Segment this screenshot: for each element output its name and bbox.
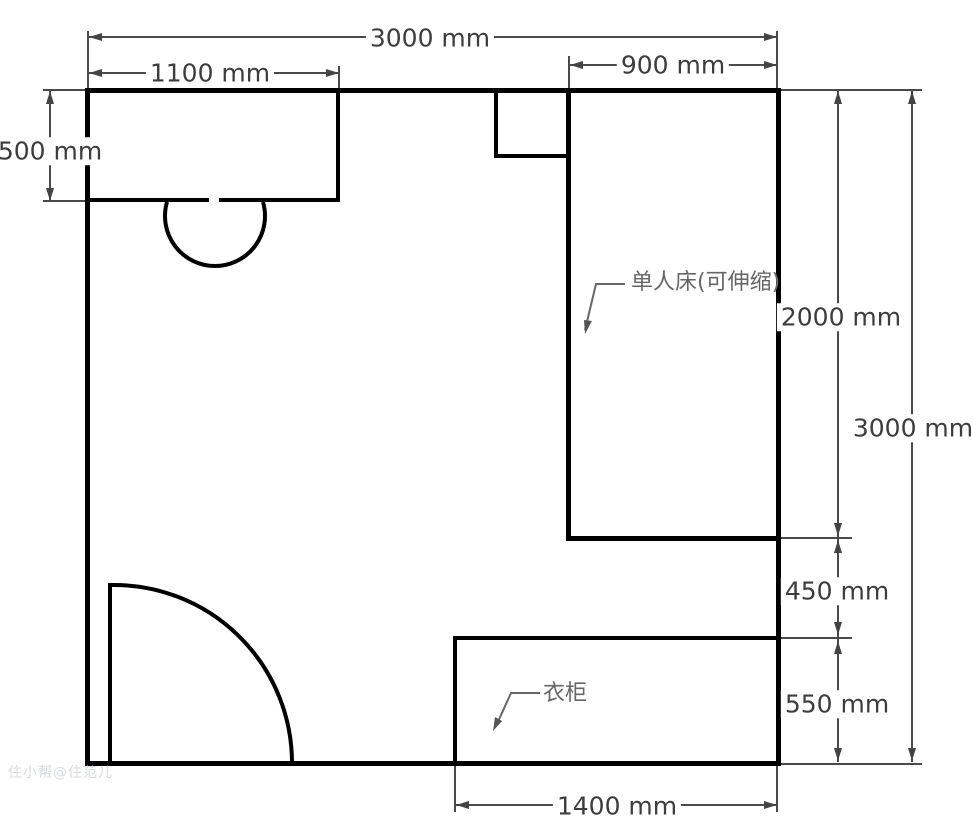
bed-label: 单人床(可伸缩) xyxy=(631,271,780,295)
watermark: 住小帮@住范儿 xyxy=(8,762,113,782)
dim-label-wardrobe-depth: 550 mm xyxy=(781,690,893,718)
dim-label-room-depth-right: 3000 mm xyxy=(849,414,973,442)
dim-label-wardrobe-width-bottom: 1400 mm xyxy=(553,792,681,820)
dim-label-bed-length: 2000 mm xyxy=(777,303,905,331)
dim-label-room-width-top: 3000 mm xyxy=(366,24,494,52)
wardrobe-label: 衣柜 xyxy=(543,682,587,706)
door-swing-arc xyxy=(112,585,292,763)
chair-semicircle xyxy=(165,202,265,266)
wardrobe-label-leader xyxy=(496,693,540,726)
floor-plan-canvas: 3000 mm 1100 mm 900 mm 500 mm 2000 mm 30… xyxy=(0,0,973,826)
dim-label-desk-width: 1100 mm xyxy=(146,59,274,87)
bed-label-leader-arrowhead xyxy=(584,320,592,334)
dim-label-bed-to-wardrobe-gap: 450 mm xyxy=(781,577,893,605)
dim-label-bed-width: 900 mm xyxy=(617,51,729,79)
bed-label-leader xyxy=(585,284,625,330)
wardrobe-label-leader-arrowhead xyxy=(493,717,502,731)
dim-label-desk-depth: 500 mm xyxy=(0,137,106,165)
